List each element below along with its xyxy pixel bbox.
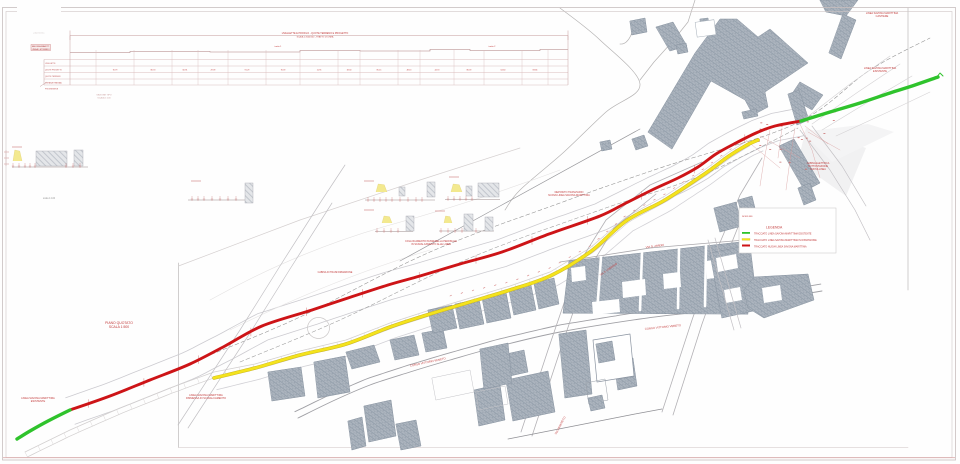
- svg-text:CABINA DI TRASFORMAZIONE: CABINA DI TRASFORMAZIONE: [318, 271, 353, 274]
- svg-text:SCALA 1:2000/200 - TRATTO DI L: SCALA 1:2000/200 - TRATTO DI LINEA: [297, 36, 334, 39]
- svg-text:LINEA LETIMBRO: LINEA LETIMBRO: [32, 48, 50, 51]
- svg-text:SEZIONE TIPO: SEZIONE TIPO: [96, 95, 112, 97]
- svg-text:tratto 1: tratto 1: [275, 45, 283, 48]
- svg-text:18.30: 18.30: [347, 70, 352, 72]
- svg-text:planimetria: planimetria: [34, 32, 45, 35]
- svg-text:60.91: 60.91: [183, 70, 188, 72]
- svg-text:LEGENDA: LEGENDA: [766, 226, 783, 230]
- svg-text:scala 1:100: scala 1:100: [43, 197, 56, 200]
- svg-text:NORD RIF.: NORD RIF.: [742, 216, 753, 218]
- svg-text:PIANO QUOTATOSCALA 1:500: PIANO QUOTATOSCALA 1:500: [105, 321, 133, 329]
- svg-text:91.29: 91.29: [245, 70, 250, 72]
- svg-text:TRACCIATO NUOVA LINEA SAVONA M: TRACCIATO NUOVA LINEA SAVONA MARITTIMA: [754, 245, 807, 248]
- svg-text:LIVELLETTE E PROFILO - QUOTE T: LIVELLETTE E PROFILO - QUOTE TERRENO E P…: [282, 32, 349, 35]
- svg-text:86.59: 86.59: [467, 70, 472, 72]
- svg-text:64.60: 64.60: [501, 70, 506, 72]
- svg-text:TRACCIATO LINEA SAVONA MARITTI: TRACCIATO LINEA SAVONA MARITTIMA ESISTEN…: [754, 233, 812, 236]
- svg-text:DISTANZE PARZIALI: DISTANZE PARZIALI: [45, 82, 63, 85]
- svg-text:85.15: 85.15: [377, 70, 382, 72]
- svg-text:LIVELLETTE: LIVELLETTE: [45, 63, 56, 65]
- svg-text:QUOTE TERRENO: QUOTE TERRENO: [45, 76, 61, 78]
- svg-text:LINEA SAVONA MARITTIMADISMESSA: LINEA SAVONA MARITTIMADISMESSA IN SCAVAL…: [186, 393, 226, 400]
- svg-text:11.95: 11.95: [317, 70, 322, 72]
- svg-text:TRACCIATO LINEA SAVONA MARITTI: TRACCIATO LINEA SAVONA MARITTIMA IN DISM…: [754, 239, 817, 242]
- svg-text:COLLOCAMENTO PASSERELLA PEDONA: COLLOCAMENTO PASSERELLA PEDONALEIN SCAVA…: [405, 240, 457, 246]
- svg-text:48.13: 48.13: [407, 70, 412, 72]
- svg-text:76.59: 76.59: [281, 70, 286, 72]
- svg-text:29.39: 29.39: [211, 70, 216, 72]
- svg-text:83.66: 83.66: [533, 70, 538, 72]
- svg-text:PROGRESSIVE: PROGRESSIVE: [45, 89, 59, 91]
- svg-text:SCALA 1:100: SCALA 1:100: [97, 96, 111, 99]
- svg-text:SAVONA MARITT.: SAVONA MARITT.: [32, 45, 50, 48]
- svg-text:QUOTE PROGETTO: QUOTE PROGETTO: [45, 70, 63, 72]
- svg-text:80.70: 80.70: [151, 70, 156, 72]
- svg-text:tratto 2: tratto 2: [489, 45, 497, 48]
- svg-text:70.79: 70.79: [113, 70, 118, 72]
- svg-text:44.70: 44.70: [435, 70, 440, 72]
